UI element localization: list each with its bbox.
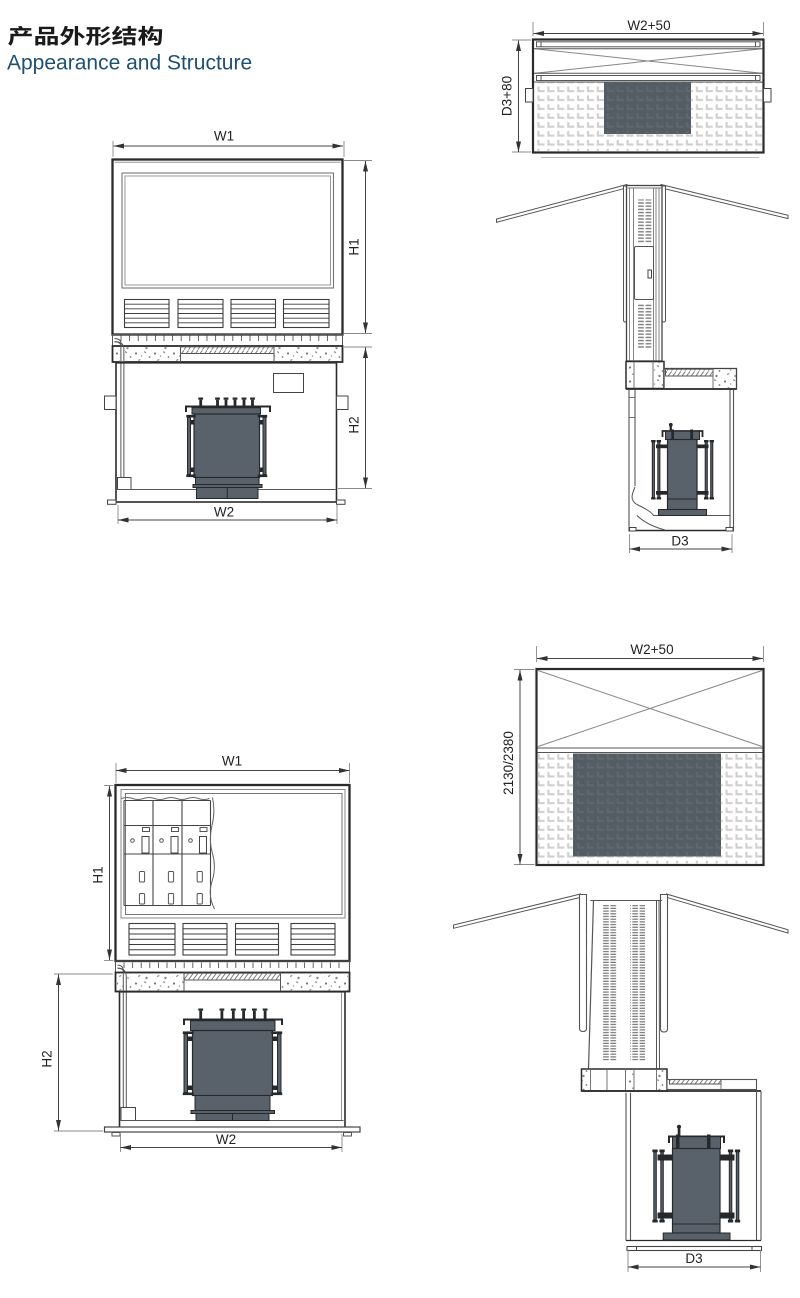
svg-text:D3: D3 <box>685 1251 702 1266</box>
svg-text:H2: H2 <box>40 1050 55 1067</box>
svg-text:W2+50: W2+50 <box>630 642 673 657</box>
svg-text:W1: W1 <box>214 129 234 144</box>
svg-text:H2: H2 <box>347 416 362 433</box>
svg-text:W1: W1 <box>222 754 242 769</box>
svg-text:D3+80: D3+80 <box>500 76 515 116</box>
svg-text:2130/2380: 2130/2380 <box>501 731 516 795</box>
svg-text:W2: W2 <box>214 505 234 520</box>
svg-text:Appearance and Structure: Appearance and Structure <box>7 52 252 75</box>
svg-text:W2+50: W2+50 <box>627 18 670 33</box>
svg-text:D3: D3 <box>671 534 688 549</box>
svg-text:W2: W2 <box>216 1132 236 1147</box>
svg-text:H1: H1 <box>91 866 106 883</box>
svg-text:H1: H1 <box>347 238 362 255</box>
